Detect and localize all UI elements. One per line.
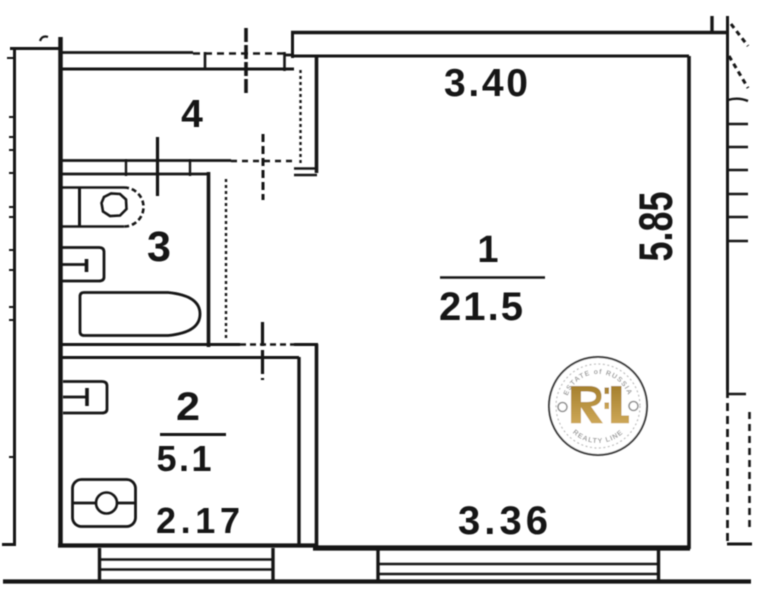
svg-text:4: 4 [181,93,203,136]
svg-text:5.85: 5.85 [629,192,682,262]
svg-text:21.5: 21.5 [439,285,523,329]
svg-text:5.1: 5.1 [157,438,212,479]
svg-text:2.17: 2.17 [156,500,240,541]
svg-text:2: 2 [176,385,200,429]
svg-text:3: 3 [147,223,171,271]
svg-text:3.36: 3.36 [458,499,548,543]
svg-text:1: 1 [477,229,498,271]
svg-text:3.40: 3.40 [444,62,528,105]
